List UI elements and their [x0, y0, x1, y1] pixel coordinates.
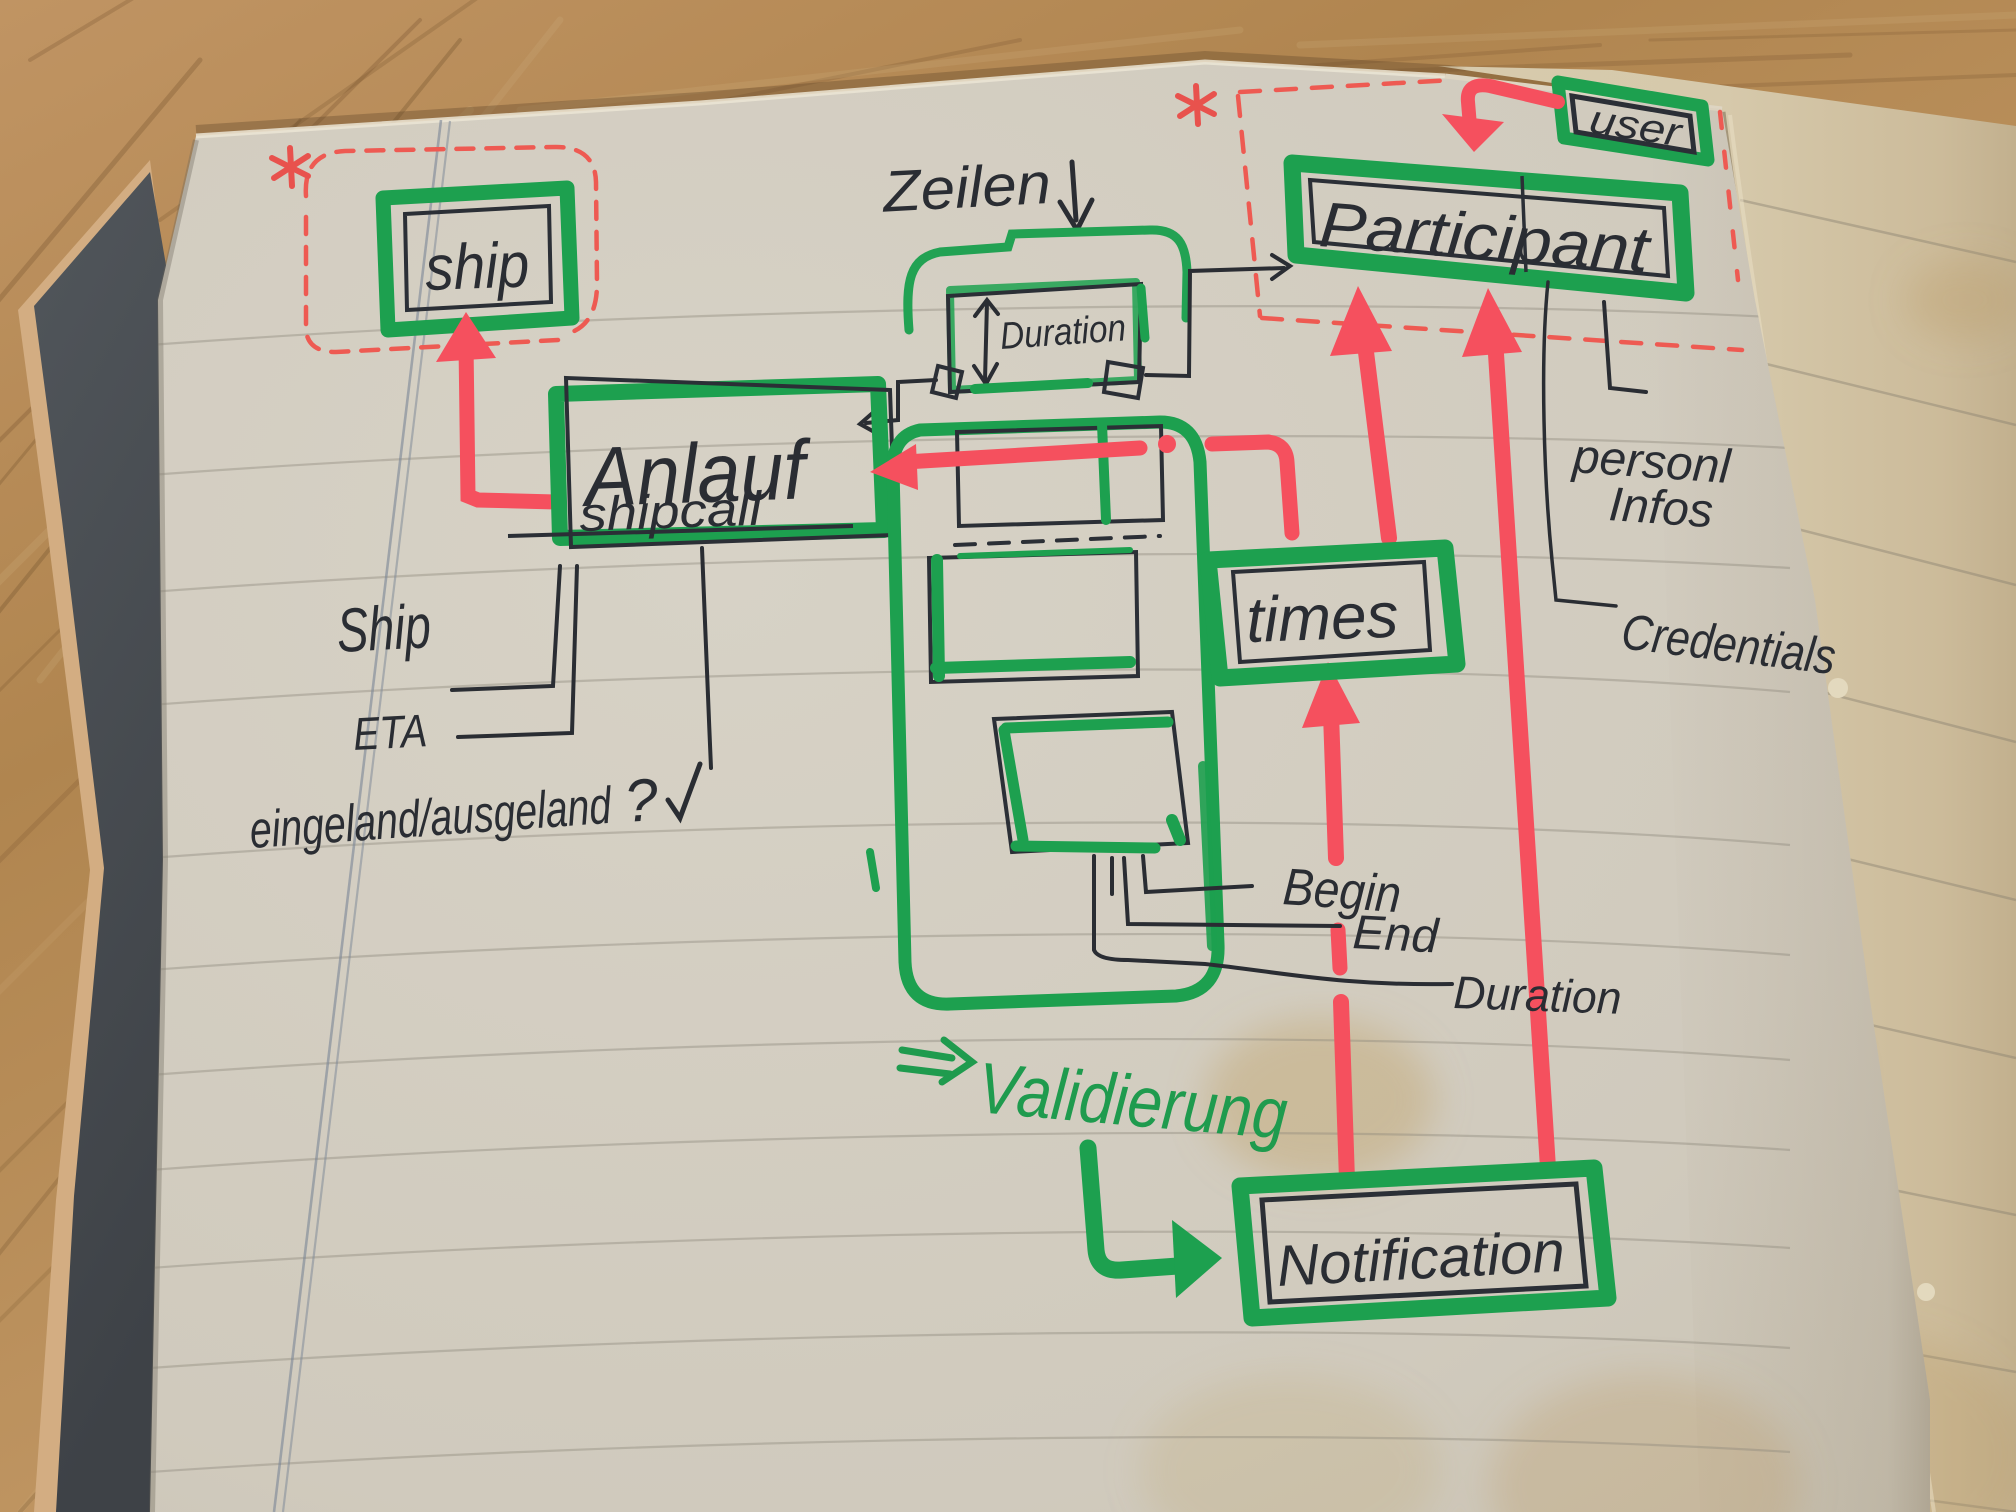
svg-text:Ship: Ship — [335, 592, 432, 666]
svg-text:ship: ship — [424, 228, 530, 304]
svg-text:ETA: ETA — [352, 704, 429, 760]
svg-text:Zeilen: Zeilen — [879, 151, 1052, 225]
svg-text:?: ? — [622, 766, 661, 835]
svg-text:Duration: Duration — [1453, 966, 1623, 1024]
svg-text:times: times — [1245, 579, 1399, 656]
svg-text:Duration: Duration — [999, 307, 1128, 358]
svg-text:End: End — [1351, 906, 1440, 963]
svg-text:shipcall: shipcall — [579, 483, 764, 542]
svg-text:Infos: Infos — [1607, 478, 1715, 538]
